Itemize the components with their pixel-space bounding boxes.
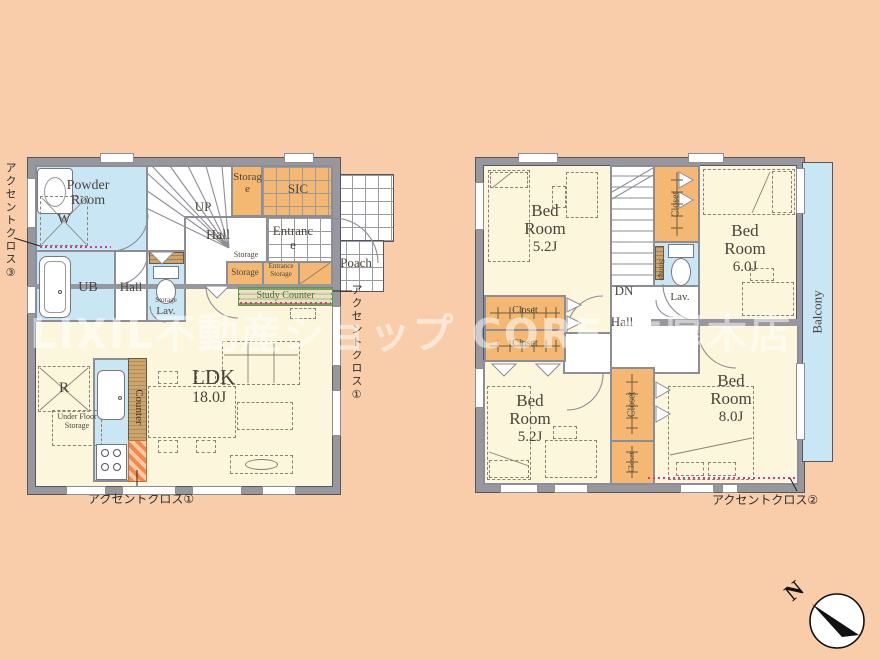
- lav-2f-storage-label: Storage: [650, 258, 664, 298]
- bed-pillow: [772, 171, 792, 213]
- up-label: UP: [188, 200, 218, 214]
- bed-pillow: [708, 462, 736, 476]
- window: [688, 153, 724, 163]
- bed-pillow: [676, 462, 704, 476]
- coffee-table: [237, 402, 293, 430]
- bedroom2-name: Bed Room: [714, 222, 776, 259]
- storage-top-label: Storage: [233, 172, 262, 196]
- porch-label: Poach: [332, 256, 380, 270]
- watermark-text: LIXIL不動産ショップ CORE 本厚木店: [30, 300, 792, 360]
- window: [500, 484, 538, 493]
- closet-top-label: Closet: [671, 191, 682, 217]
- toilet-tank-1f: [153, 266, 179, 279]
- bedroom3-label: Bed Room 8.0J: [700, 372, 762, 425]
- closet-top: Closet: [653, 165, 700, 243]
- desk: [545, 440, 597, 478]
- window: [475, 182, 484, 230]
- hall-1f-label: Hall: [198, 228, 238, 243]
- bedroom4-name: Bed Room: [499, 392, 561, 429]
- bedroom3-name: Bed Room: [700, 372, 762, 409]
- bedroom4-label: Bed Room 5.2J: [499, 392, 561, 445]
- floor-plan-canvas: Counter W R Under Floor Storage Powder R…: [0, 0, 880, 660]
- kitchen-accent-wall: [128, 440, 147, 482]
- dn-label: DN: [608, 284, 640, 298]
- window: [680, 484, 714, 493]
- balcony-label: Balcony: [810, 290, 824, 333]
- closet-mid-upper: Closet: [610, 367, 655, 442]
- window: [66, 486, 106, 495]
- accent-cross-left-label: アクセントクロス③: [2, 162, 18, 312]
- dining-chair: [196, 440, 216, 453]
- refrigerator-label: R: [52, 380, 76, 396]
- entrance-storage-label: Entrance Storage: [263, 263, 299, 278]
- porch-tile-upper: [338, 174, 394, 242]
- bed-pillow: [489, 460, 529, 478]
- kitchen-counter-label: Counter: [132, 372, 144, 442]
- powder-room-label: Powder Room: [56, 178, 120, 208]
- closet-mid-lower: Closet: [610, 440, 655, 485]
- window: [796, 168, 805, 214]
- shoe-corner: [298, 261, 333, 286]
- window: [722, 484, 738, 493]
- storage-cabinet-label: Storage: [227, 268, 263, 278]
- balcony: Balcony: [802, 162, 833, 462]
- hall-patch-1f: [186, 261, 228, 285]
- window: [27, 178, 36, 228]
- accent-cross-bottom2f-label: アクセントクロス②: [712, 491, 818, 508]
- bedroom1-name: Bed Room: [514, 202, 576, 239]
- window: [192, 486, 242, 495]
- bedroom2-size: 6.0J: [714, 259, 776, 275]
- bedroom1-size: 5.2J: [514, 239, 576, 255]
- entrance-label: Entrance: [272, 224, 314, 252]
- storage-text-label: Storage: [226, 251, 266, 260]
- toilet-bowl-2f: [671, 258, 691, 286]
- window: [518, 153, 558, 163]
- kitchen-sink: [97, 370, 125, 420]
- toilet-tank-2f: [668, 244, 694, 258]
- window: [100, 153, 134, 163]
- window: [284, 153, 314, 163]
- sic-label: SIC: [278, 182, 318, 196]
- window: [796, 363, 805, 440]
- window: [122, 486, 176, 495]
- window: [554, 484, 588, 493]
- dining-chair: [158, 371, 178, 384]
- ldk-name: LDK: [192, 366, 266, 389]
- bedroom2-label: Bed Room 6.0J: [714, 222, 776, 275]
- hall-left-label: Hall: [112, 280, 150, 294]
- staircase-2f: [610, 165, 655, 287]
- tv: [245, 459, 278, 470]
- window: [262, 486, 296, 495]
- window: [332, 390, 341, 436]
- ldk-label: LDK 18.0J: [192, 366, 266, 406]
- bedroom3-size: 8.0J: [700, 409, 762, 425]
- dining-chair: [158, 440, 178, 453]
- kitchen-stove: [96, 444, 127, 480]
- lav-shelf-1f: [149, 252, 184, 264]
- under-floor-storage-label: Under Floor Storage: [54, 413, 100, 430]
- ub-label: UB: [72, 280, 104, 295]
- closet-mid-upper-label: Closet: [627, 392, 638, 418]
- lav-2f-storage-text: Storage: [657, 259, 665, 280]
- bed-pillow: [490, 172, 528, 188]
- ldk-size: 18.0J: [192, 389, 266, 406]
- closet-mid-lower-label: Closet: [628, 452, 637, 472]
- washer-label: W: [52, 212, 76, 227]
- bedroom1-label: Bed Room 5.2J: [514, 202, 576, 255]
- bedroom4-size: 5.2J: [499, 429, 561, 445]
- window: [475, 368, 484, 408]
